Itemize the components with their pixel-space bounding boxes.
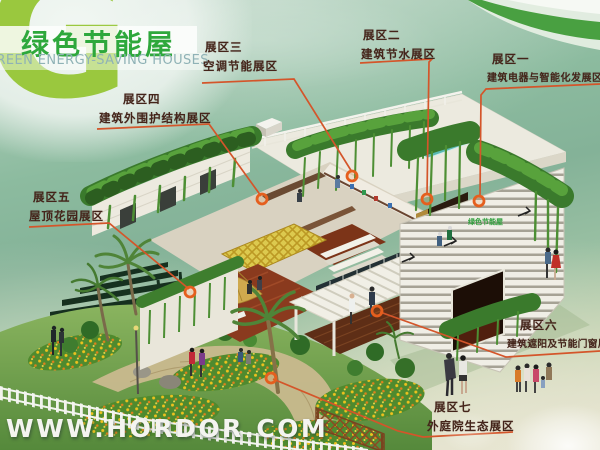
- corner-swoosh: [468, 0, 600, 50]
- zone4-marker: [257, 194, 267, 204]
- zone1-marker: [474, 196, 484, 206]
- zone-label-7: 展区七 外庭院生态展区: [427, 398, 515, 436]
- zone2-name: 建筑节水展区: [361, 45, 436, 64]
- zone7-number: 展区七: [434, 398, 515, 417]
- zone7-marker: [266, 373, 276, 383]
- zone3-name: 空调节能展区: [203, 57, 278, 76]
- zone5-marker: [185, 287, 195, 297]
- zone5-number: 展区五: [33, 188, 104, 207]
- zone-label-4: 展区四 建筑外围护结构展区: [99, 90, 212, 128]
- building-sign: 绿色节能屋: [468, 217, 503, 226]
- person-family: [515, 363, 552, 394]
- zone-label-2: 展区二 建筑节水展区: [361, 26, 436, 64]
- zone2-number: 展区二: [363, 26, 436, 45]
- zone4-name: 建筑外围护结构展区: [99, 109, 212, 128]
- zone6-number: 展区六: [520, 316, 600, 335]
- poster-subtitle: GREEN ENERGY-SAVING HOUSES: [0, 53, 209, 68]
- zone6-marker: [372, 306, 382, 316]
- zone-label-5: 展区五 屋顶花园展区: [29, 188, 104, 226]
- zone1-name: 建筑电器与智能化发展区: [487, 69, 600, 88]
- zone3-number: 展区三: [205, 38, 278, 57]
- zone1-number: 展区一: [492, 50, 600, 69]
- zone5-name: 屋顶花园展区: [29, 207, 104, 226]
- zone4-number: 展区四: [123, 90, 212, 109]
- zone3-marker: [347, 171, 357, 181]
- watermark: WWW.HORDOR.COM: [6, 414, 328, 443]
- zone-label-3: 展区三 空调节能展区: [203, 38, 278, 76]
- zone6-name: 建筑遮阳及节能门窗展区: [507, 335, 600, 354]
- zone2-marker: [422, 194, 432, 204]
- zone7-name: 外庭院生态展区: [427, 417, 515, 436]
- zone-label-6: 展区六 建筑遮阳及节能门窗展区: [507, 316, 600, 354]
- poster-photo: G: [0, 0, 600, 450]
- zone-label-1: 展区一 建筑电器与智能化发展区: [487, 50, 600, 88]
